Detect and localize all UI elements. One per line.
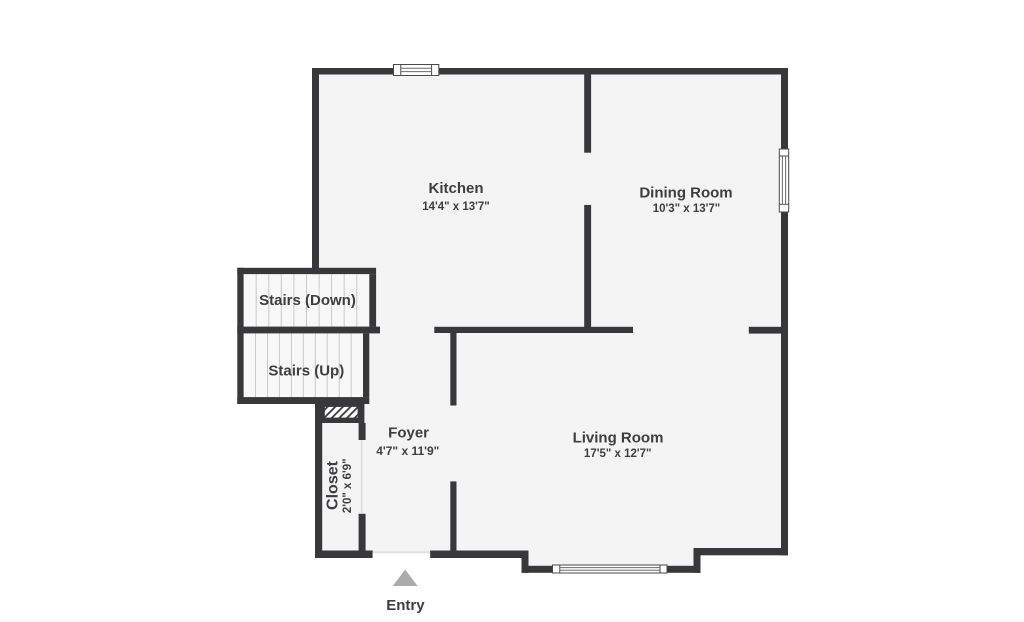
svg-text:2'0" x 6'9": 2'0" x 6'9": [342, 458, 354, 513]
svg-text:10'3" x 13'7": 10'3" x 13'7": [653, 203, 721, 215]
svg-text:4'7" x 11'9": 4'7" x 11'9": [376, 444, 439, 458]
svg-text:Kitchen: Kitchen: [428, 180, 483, 197]
svg-text:Foyer: Foyer: [388, 425, 429, 442]
svg-text:Dining Room: Dining Room: [639, 185, 732, 202]
svg-text:Entry: Entry: [386, 597, 425, 614]
svg-text:Stairs (Up): Stairs (Up): [268, 363, 344, 380]
svg-text:17'5" x 12'7": 17'5" x 12'7": [584, 448, 652, 460]
svg-text:Closet: Closet: [324, 460, 341, 510]
svg-text:Stairs (Down): Stairs (Down): [259, 292, 356, 309]
svg-text:14'4" x 13'7": 14'4" x 13'7": [422, 201, 490, 213]
svg-text:Living Room: Living Room: [573, 430, 664, 447]
